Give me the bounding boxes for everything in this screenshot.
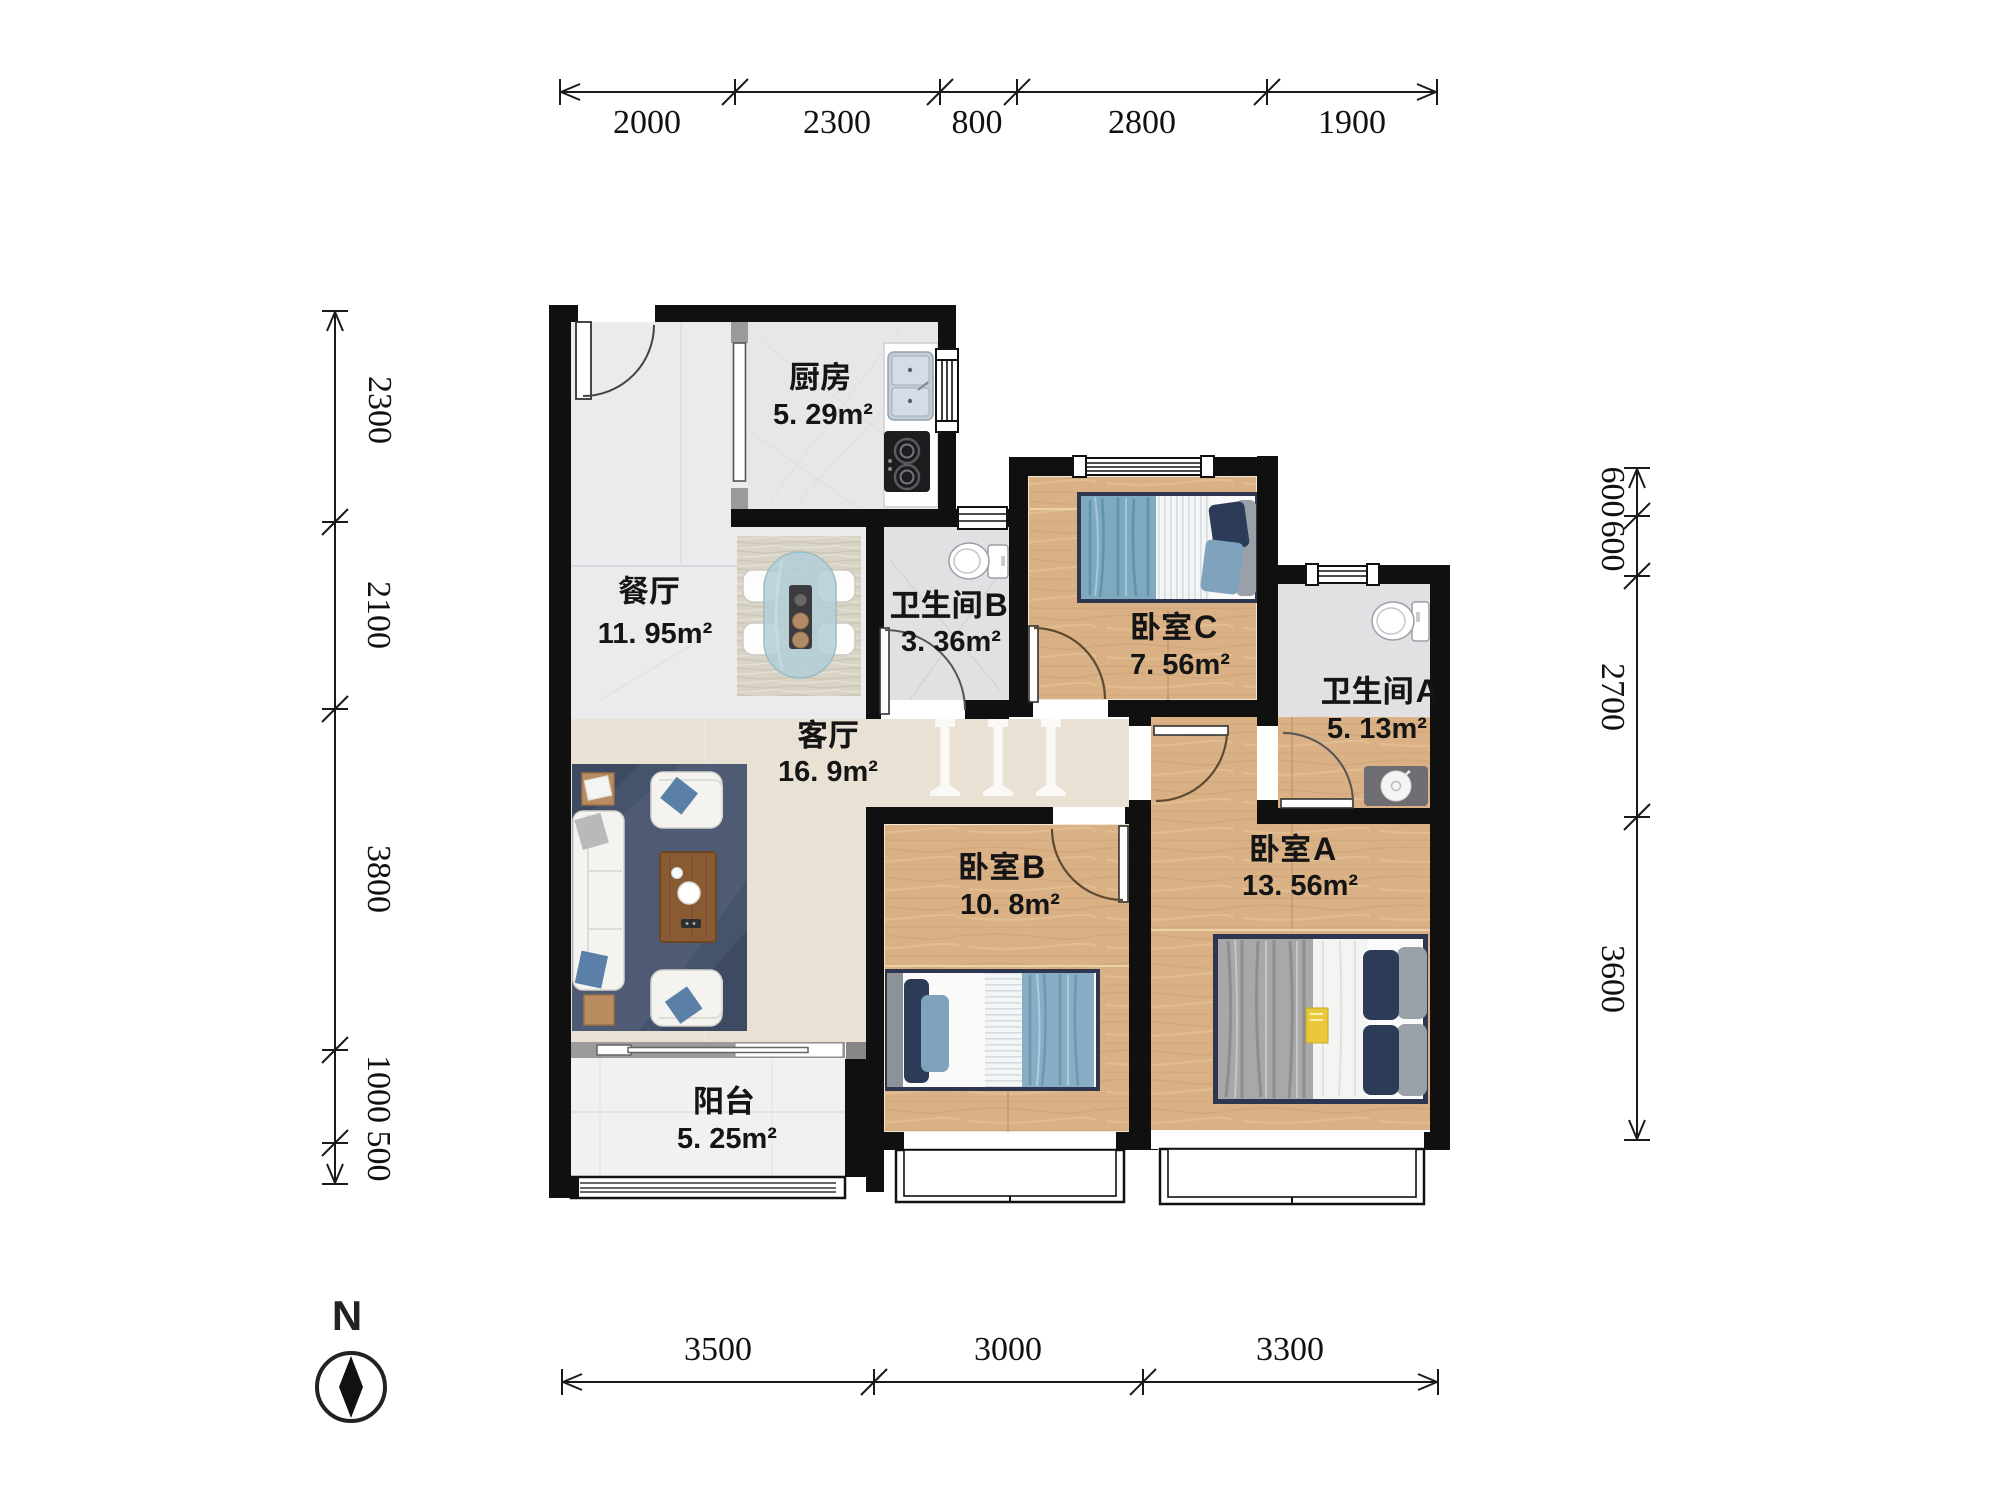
svg-text:7. 56m²: 7. 56m² [1130, 649, 1230, 681]
svg-text:C: C [1194, 609, 1217, 645]
svg-text:11. 95m²: 11. 95m² [598, 618, 713, 650]
svg-text:10. 8m²: 10. 8m² [960, 889, 1060, 921]
svg-text:N: N [332, 1292, 362, 1339]
svg-text:A: A [1313, 831, 1336, 867]
svg-text:B: B [1022, 849, 1045, 885]
svg-text:500: 500 [360, 1131, 397, 1182]
svg-text:5. 25m²: 5. 25m² [677, 1123, 777, 1155]
svg-text:3800: 3800 [360, 845, 397, 913]
svg-text:2800: 2800 [1108, 104, 1176, 141]
svg-text:800: 800 [952, 104, 1003, 141]
svg-text:3. 36m²: 3. 36m² [901, 626, 1001, 658]
svg-text:5. 29m²: 5. 29m² [773, 399, 873, 431]
svg-text:2000: 2000 [613, 104, 681, 141]
svg-text:2300: 2300 [803, 104, 871, 141]
svg-text:2700: 2700 [1594, 663, 1631, 731]
svg-text:600: 600 [1594, 521, 1631, 572]
svg-text:600: 600 [1594, 467, 1631, 518]
svg-text:B: B [985, 587, 1008, 623]
svg-text:3600: 3600 [1594, 945, 1631, 1013]
svg-text:16. 9m²: 16. 9m² [778, 756, 878, 788]
svg-text:1000: 1000 [360, 1055, 397, 1123]
svg-text:13. 56m²: 13. 56m² [1242, 870, 1358, 902]
svg-text:3000: 3000 [974, 1331, 1042, 1368]
svg-text:3500: 3500 [684, 1331, 752, 1368]
svg-text:5. 13m²: 5. 13m² [1327, 713, 1427, 745]
svg-text:A: A [1416, 673, 1439, 709]
svg-text:2100: 2100 [360, 581, 397, 649]
svg-text:1900: 1900 [1318, 104, 1386, 141]
svg-text:2300: 2300 [361, 376, 398, 444]
svg-text:3300: 3300 [1256, 1331, 1324, 1368]
